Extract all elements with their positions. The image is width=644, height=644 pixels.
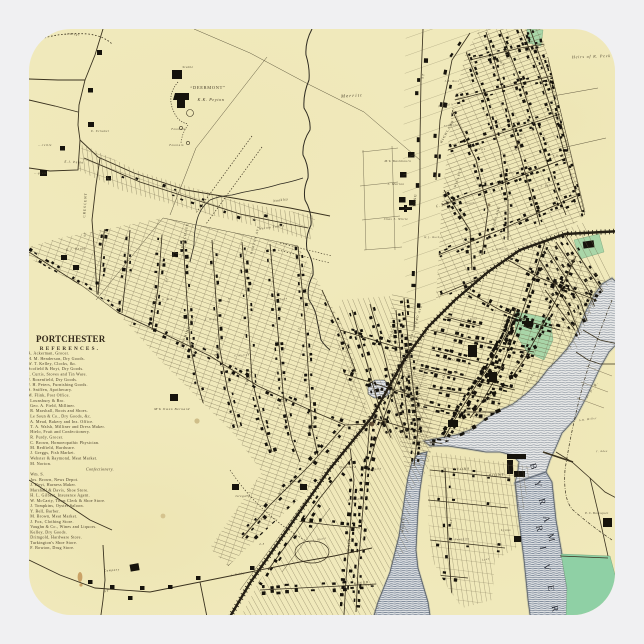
svg-text:Fountain: Fountain [168, 144, 184, 147]
svg-text:J.F. & L.: J.F. & L. [481, 398, 496, 401]
svg-text:LYONS: LYONS [454, 467, 471, 472]
svg-text:...rville: ...rville [38, 143, 52, 147]
svg-text:K.K. Peyton: K.K. Peyton [197, 97, 225, 102]
svg-text:Fountain: Fountain [170, 128, 186, 131]
svg-text:...gram: ...gram [34, 171, 47, 175]
svg-text:Stable: Stable [182, 65, 193, 69]
svg-text:J. Marion: J. Marion [387, 182, 404, 186]
svg-text:E.C.Bousquet: E.C.Bousquet [584, 511, 609, 515]
svg-text:ST: ST [449, 518, 453, 524]
svg-text:J.B. Rust: J.B. Rust [445, 80, 460, 83]
svg-text:Chas J. White: Chas J. White [384, 217, 409, 221]
svg-text:Lyons: Lyons [500, 528, 511, 532]
svg-text:A. Gilbert: A. Gilbert [491, 248, 508, 252]
svg-text:Mʳʦ Washbourn: Mʳʦ Washbourn [384, 159, 412, 163]
svg-text:E. Brown: E. Brown [204, 318, 220, 322]
svg-text:..n Ridge: ..n Ridge [64, 32, 80, 37]
svg-text:2.3: 2.3 [259, 542, 265, 546]
svg-text:W.L. Bush: W.L. Bush [424, 236, 440, 239]
svg-text:U. Echabel: U. Echabel [91, 130, 110, 133]
svg-text:Quintard: Quintard [339, 465, 356, 469]
svg-text:J. Adee: J. Adee [596, 450, 608, 453]
svg-text:“DEERMONT”: “DEERMONT” [190, 85, 225, 90]
svg-text:ST: ST [104, 589, 110, 594]
svg-text:Mʳʦ Owen Bernard: Mʳʦ Owen Bernard [153, 407, 190, 411]
svg-text:Gregory: Gregory [236, 494, 251, 498]
svg-text:PORTCHESTER: PORTCHESTER [36, 334, 106, 344]
svg-text:J. Wooten: J. Wooten [470, 148, 486, 152]
svg-text:ST: ST [83, 231, 87, 237]
